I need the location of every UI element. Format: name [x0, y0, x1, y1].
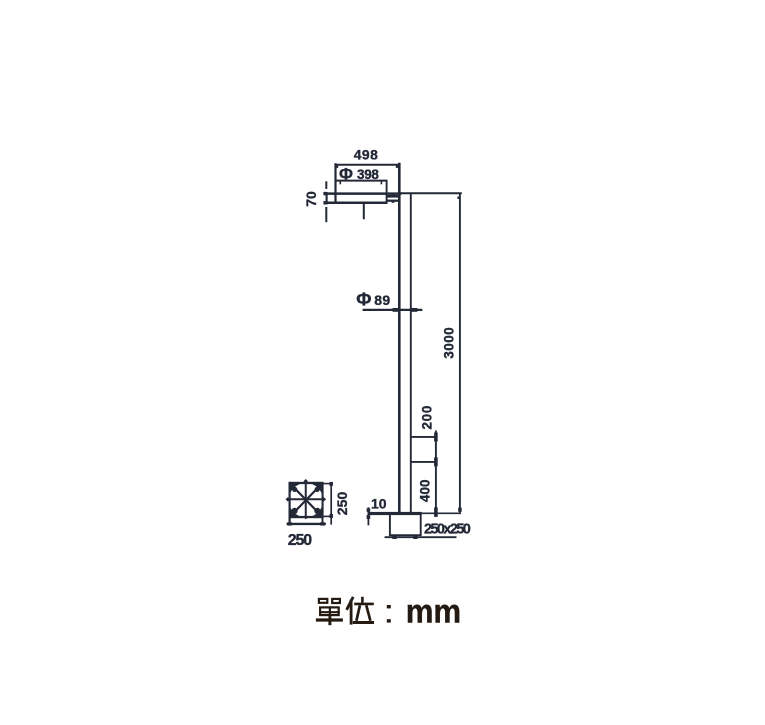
svg-text:200: 200	[419, 405, 434, 430]
svg-text:Φ: Φ	[356, 288, 371, 309]
svg-text:250: 250	[288, 532, 313, 549]
svg-text:mm: mm	[406, 593, 461, 630]
svg-text:10: 10	[371, 496, 387, 512]
svg-text:70: 70	[303, 191, 319, 207]
svg-text:Φ: Φ	[339, 165, 353, 184]
svg-text:498: 498	[354, 147, 379, 163]
svg-text:3000: 3000	[441, 327, 456, 359]
svg-text:250x250: 250x250	[424, 522, 471, 538]
svg-text:400: 400	[417, 480, 432, 503]
svg-text:398: 398	[357, 167, 379, 182]
svg-text:89: 89	[374, 292, 390, 308]
svg-text:250: 250	[334, 491, 350, 515]
